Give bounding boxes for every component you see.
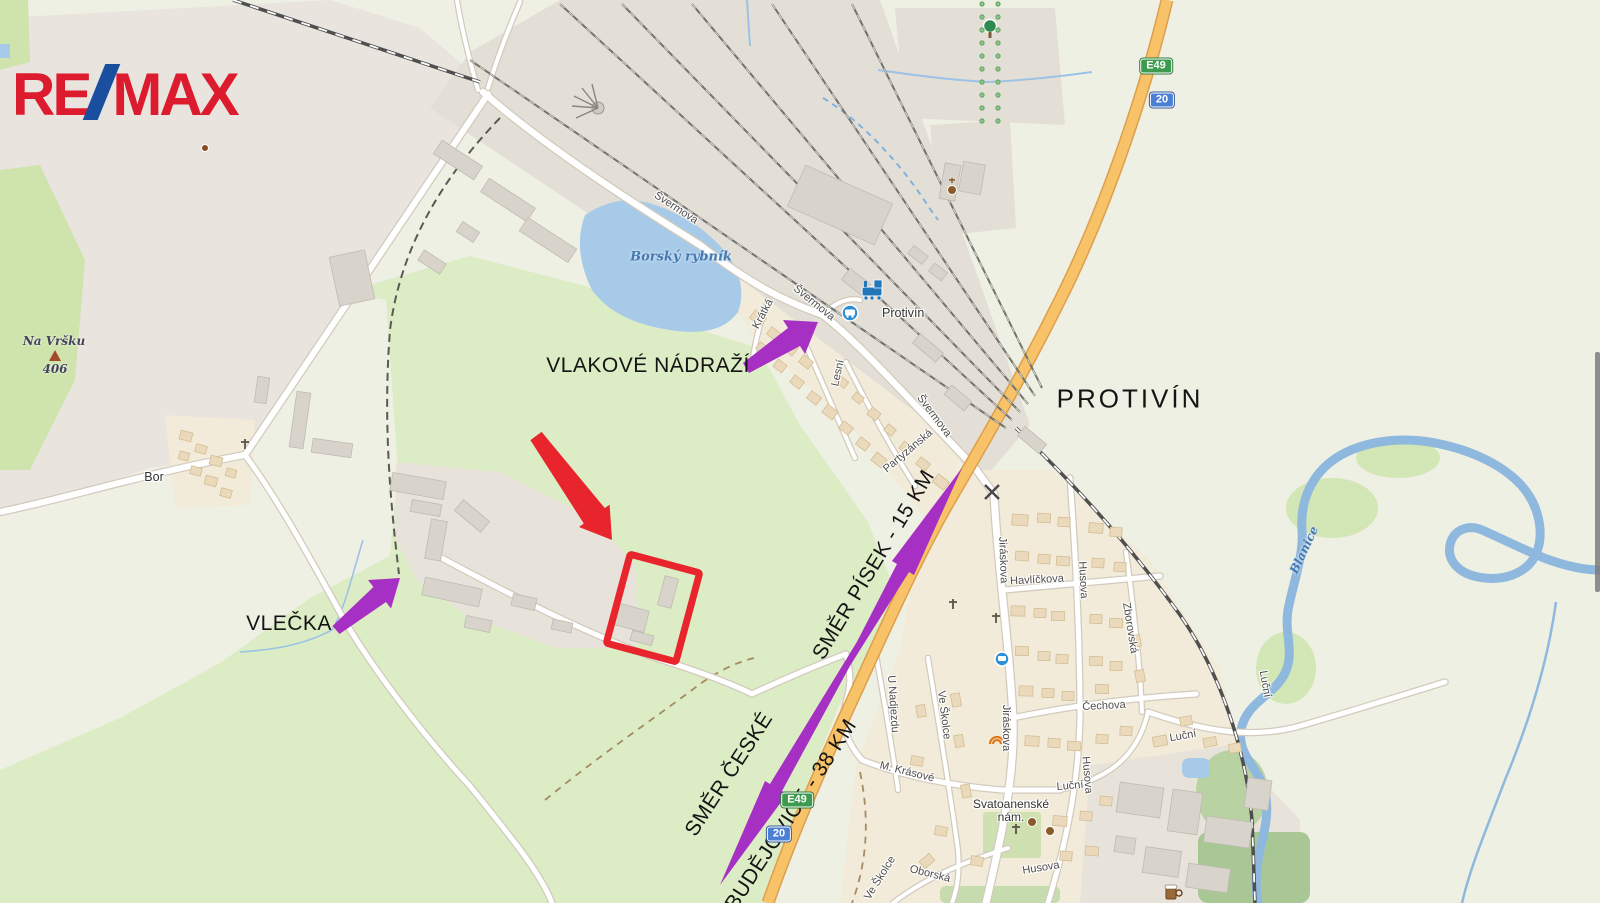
train-station-annotation: VLAKOVÉ NÁDRAŽÍ: [546, 354, 750, 378]
hill-name-label: Na Vršku: [23, 334, 85, 348]
siding-annotation: VLEČKA: [246, 612, 332, 636]
station-label: Protivín: [882, 306, 924, 320]
square-label: Svatoanenské nám.: [973, 798, 1049, 824]
remax-logo-max: MAX: [112, 60, 236, 129]
hamlet-label: Bor: [144, 470, 163, 484]
street-label-jiraskova-2: Jiráskova: [1000, 705, 1012, 751]
shield-e49-south: E49: [781, 793, 813, 808]
street-label-lucni-2: Luční: [1056, 779, 1084, 793]
map[interactable]: RE MAX VLAKOVÉ NÁDRAŽÍ PROTIVÍN VLEČKA S…: [0, 0, 1600, 903]
street-label-jiraskova-1: Jiráskova: [996, 537, 1010, 584]
small-pond: [1182, 758, 1210, 778]
remax-logo-re: RE: [12, 60, 89, 129]
lake-label: Borský rybník: [630, 250, 732, 265]
shield-20-south: 20: [767, 827, 791, 842]
city-annotation: PROTIVÍN: [1057, 384, 1204, 415]
street-label-cechova: Čechova: [1082, 699, 1126, 713]
shield-20-north: 20: [1150, 93, 1174, 108]
remax-logo: RE MAX: [12, 60, 237, 129]
map-scrollbar[interactable]: [1595, 352, 1600, 592]
shield-e49-north: E49: [1140, 59, 1172, 74]
street-label-husova-1: Husova: [1076, 561, 1090, 599]
hill-elevation-label: 406: [42, 362, 67, 376]
